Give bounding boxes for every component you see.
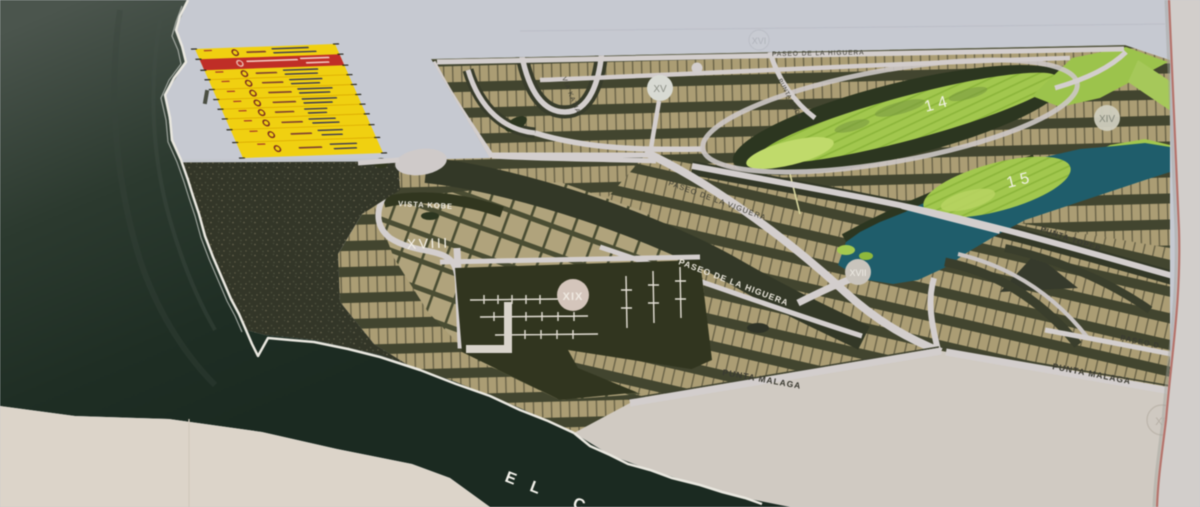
svg-text:XVIII: XVIII [407, 235, 450, 252]
svg-text:XIV: XIV [1099, 114, 1115, 125]
svg-text:XV: XV [653, 84, 667, 95]
svg-text:XVII: XVII [849, 268, 866, 278]
svg-text:XIX: XIX [563, 291, 584, 303]
svg-text:XVI: XVI [752, 36, 767, 46]
